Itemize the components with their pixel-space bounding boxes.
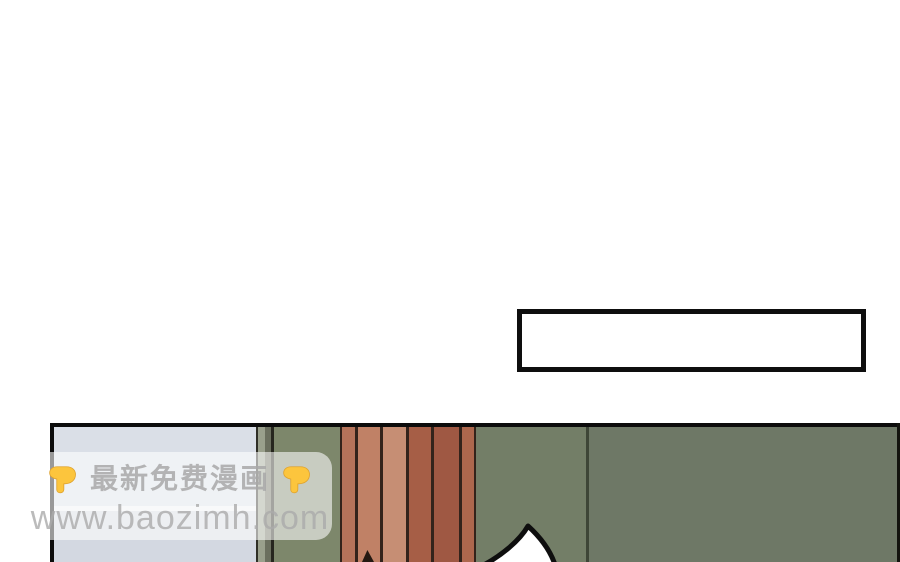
down-pointing-hand-icon bbox=[282, 459, 312, 495]
wall-right bbox=[589, 423, 897, 562]
watermark-title-row: 最新免费漫画 bbox=[48, 456, 312, 498]
wall-plank bbox=[358, 423, 380, 562]
wall-plank bbox=[409, 423, 431, 562]
watermark-title: 最新免费漫画 bbox=[90, 457, 270, 497]
panel-border-top bbox=[50, 423, 900, 427]
plank-wall bbox=[340, 423, 476, 562]
wall-plank bbox=[342, 423, 355, 562]
wall-plank bbox=[434, 423, 459, 562]
speech-bubble-tail bbox=[472, 518, 562, 562]
watermark-overlay: 最新免费漫画 www.baozimh.com bbox=[28, 452, 332, 540]
wall-plank bbox=[383, 423, 406, 562]
watermark-url: www.baozimh.com bbox=[31, 498, 329, 538]
caption-box bbox=[517, 309, 866, 372]
down-pointing-hand-icon bbox=[48, 459, 78, 495]
comic-page: 最新免费漫画 www.baozimh.com bbox=[0, 0, 900, 562]
